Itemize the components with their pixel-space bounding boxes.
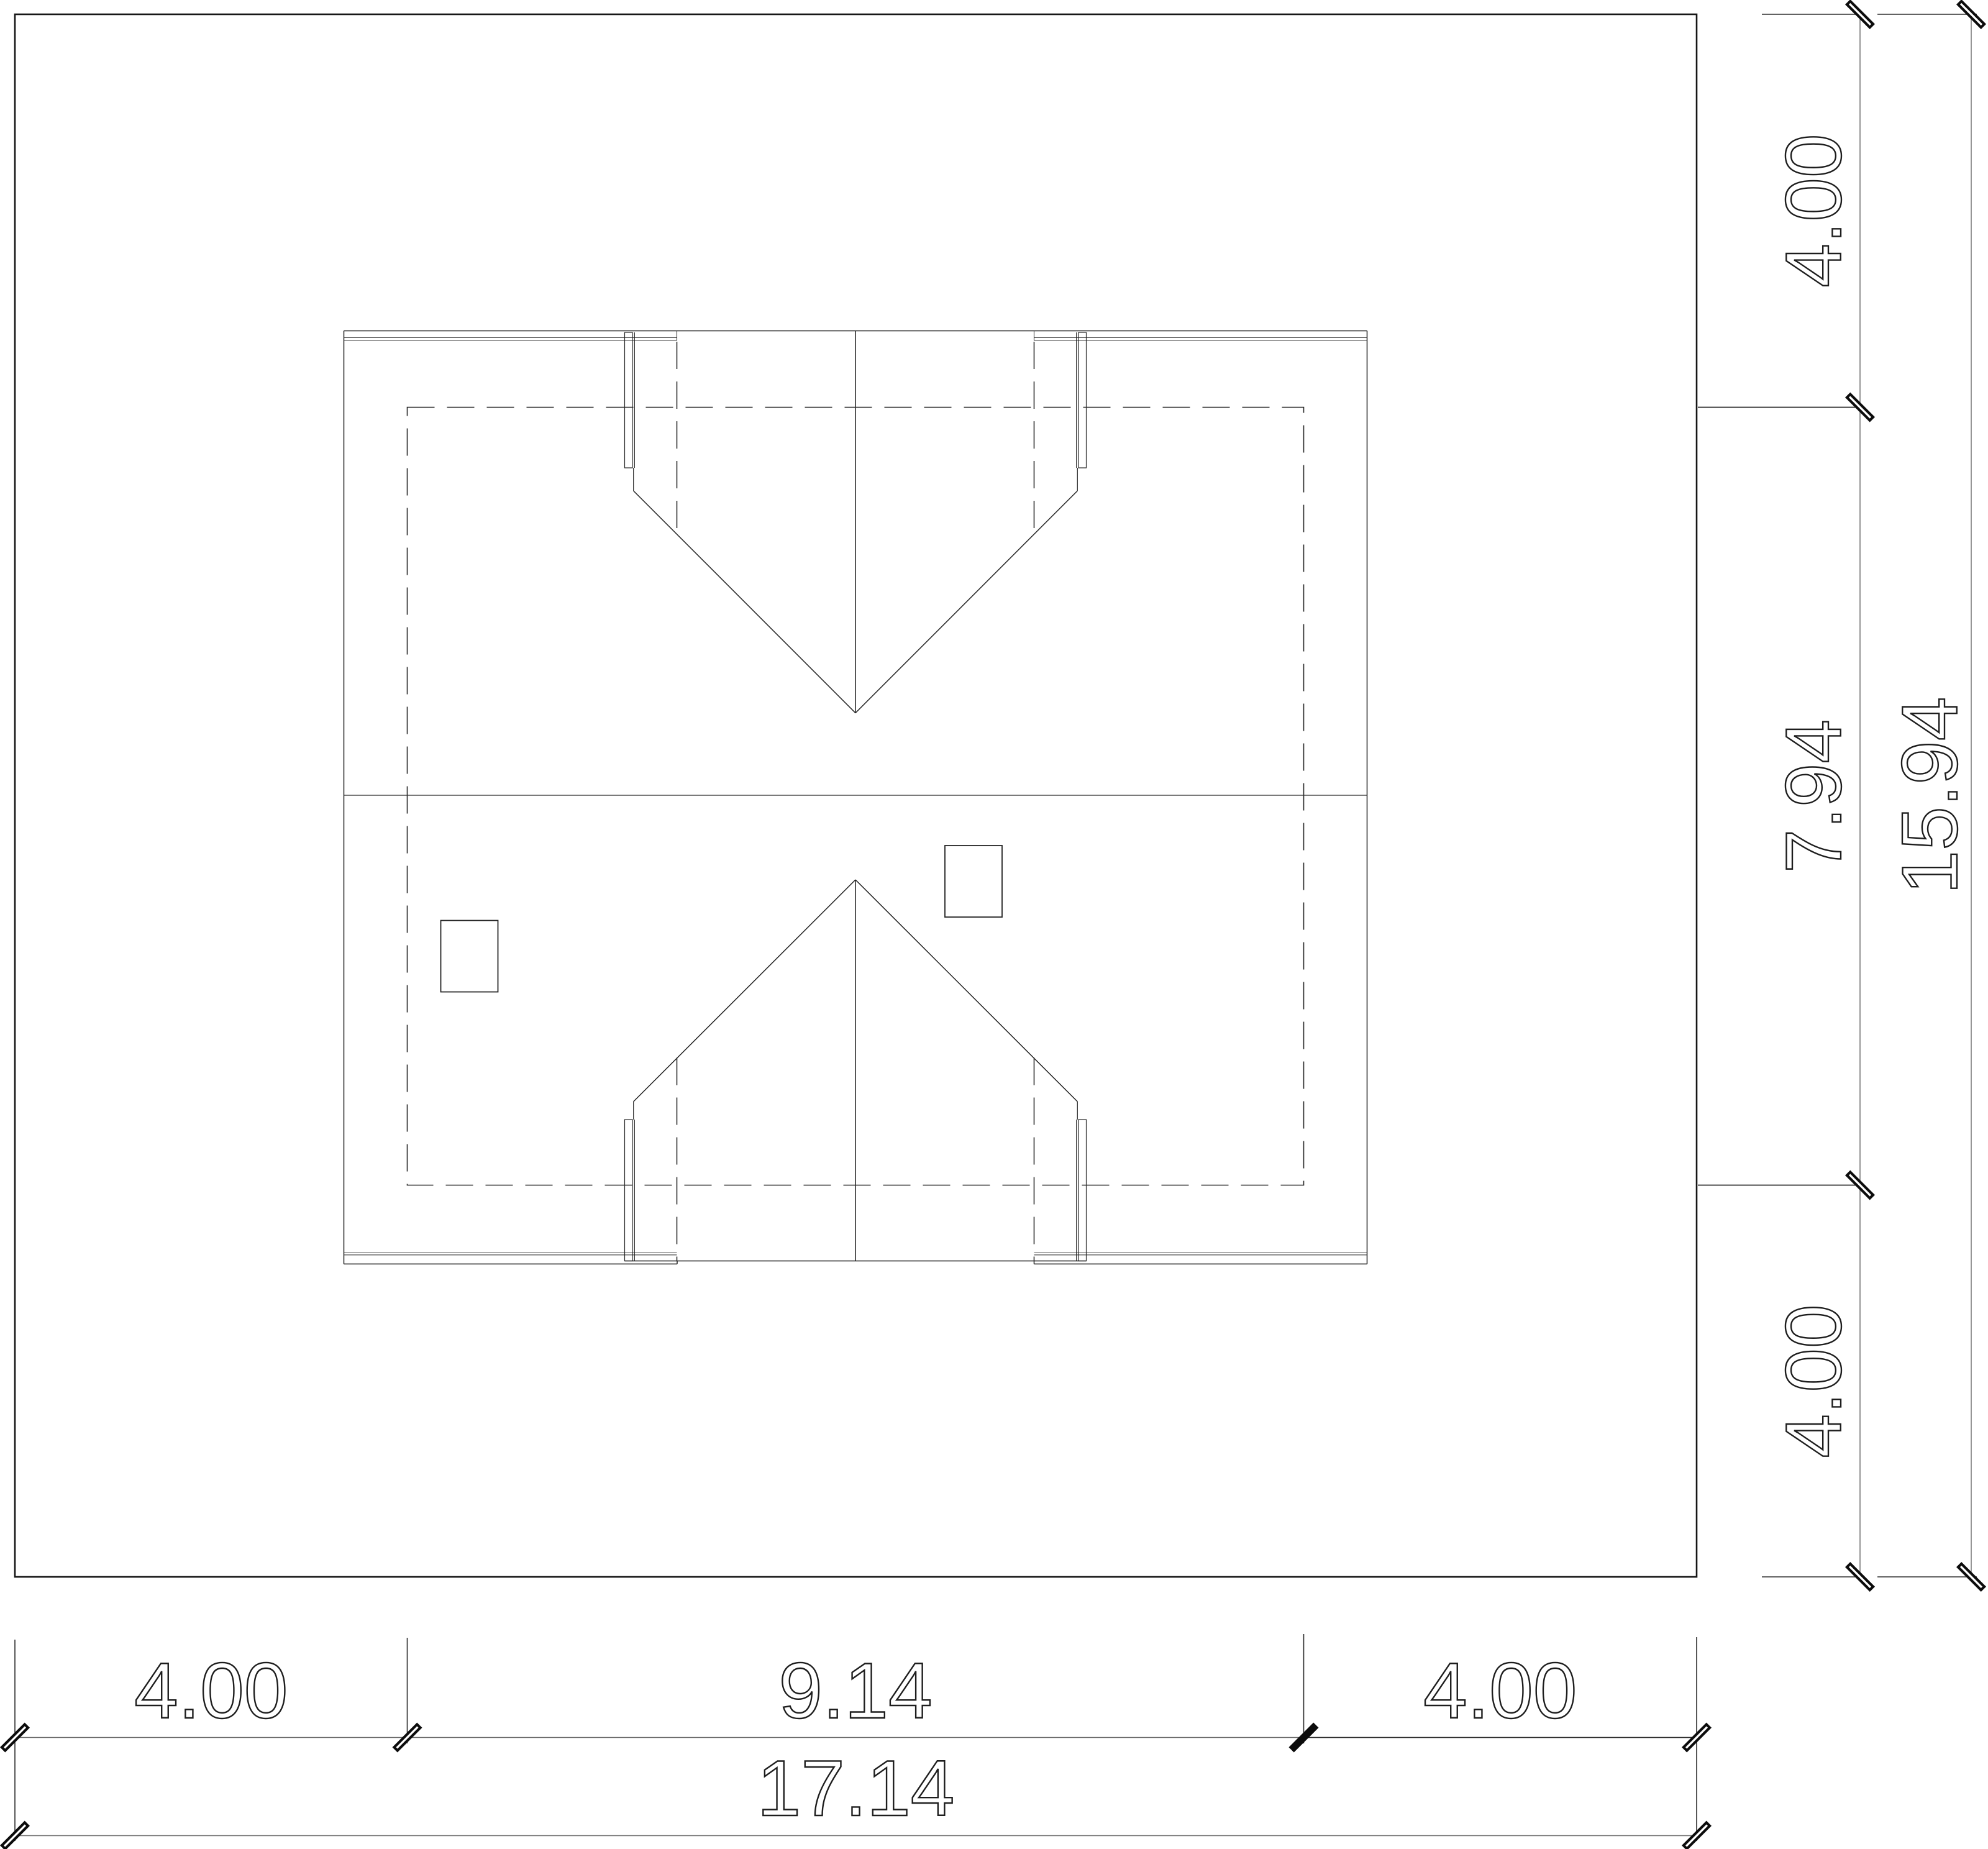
svg-text:4.00: 4.00: [1423, 1646, 1577, 1735]
svg-text:9.14: 9.14: [778, 1646, 932, 1735]
svg-text:17.14: 17.14: [757, 1744, 955, 1832]
svg-text:4.00: 4.00: [134, 1646, 288, 1735]
svg-text:4.00: 4.00: [1769, 1304, 1858, 1458]
svg-text:15.94: 15.94: [1885, 697, 1974, 895]
svg-text:4.00: 4.00: [1769, 134, 1858, 287]
svg-text:7.94: 7.94: [1769, 719, 1858, 873]
